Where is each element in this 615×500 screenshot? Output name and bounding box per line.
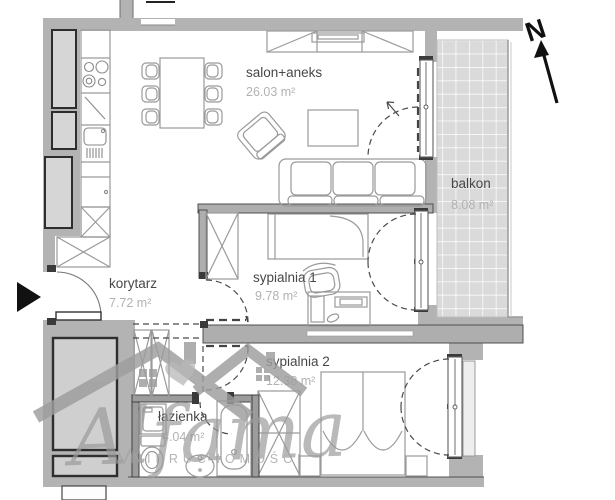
sofa bbox=[279, 159, 426, 206]
tv-icon bbox=[312, 33, 364, 42]
sink-icon bbox=[84, 128, 106, 158]
nightstand-right bbox=[406, 456, 427, 476]
sypialnia1-label: sypialnia 1 bbox=[253, 270, 317, 285]
salon-area: 26.03 m² bbox=[246, 85, 295, 99]
armchair bbox=[235, 110, 288, 163]
sypialnia1-area: 9.78 m² bbox=[255, 289, 297, 303]
bedroom1-door bbox=[206, 280, 248, 322]
bedroom1-window bbox=[368, 208, 428, 312]
entrance-door-leaf bbox=[56, 312, 101, 320]
bedroom2-window bbox=[401, 354, 475, 459]
counter-board bbox=[85, 97, 105, 119]
door-swing-arrow bbox=[387, 102, 399, 116]
entrance-arrow-icon bbox=[17, 282, 41, 312]
dining-table bbox=[160, 58, 204, 128]
korytarz-area: 7.72 m² bbox=[109, 296, 151, 310]
korytarz-label: korytarz bbox=[109, 276, 157, 291]
floor-plan: salon+aneks 26.03 m² balkon 8.08 m² kory… bbox=[0, 0, 615, 500]
balcony-door bbox=[368, 56, 433, 160]
balkon-label: balkon bbox=[451, 176, 491, 191]
coffee-table bbox=[308, 110, 358, 146]
salon-label: salon+aneks bbox=[246, 65, 322, 80]
kitchen-cabinet-x bbox=[81, 207, 110, 237]
bedroom1-wardrobe bbox=[206, 213, 238, 279]
north-label: N bbox=[522, 13, 550, 48]
entrance-door bbox=[47, 265, 101, 325]
stove-icon bbox=[83, 61, 108, 87]
watermark-subtitle: NIERUCHOMOŚCI bbox=[133, 451, 306, 466]
dining-table-set bbox=[142, 58, 222, 128]
hall-wardrobe-wide bbox=[57, 237, 110, 267]
watermark-brand: Alfama bbox=[62, 385, 348, 485]
dining-chairs bbox=[142, 63, 222, 125]
tv-sideboard bbox=[267, 31, 413, 52]
bedroom1-bed bbox=[268, 214, 368, 259]
balkon-area: 8.08 m² bbox=[451, 198, 493, 212]
north-arrow: N bbox=[522, 13, 557, 103]
